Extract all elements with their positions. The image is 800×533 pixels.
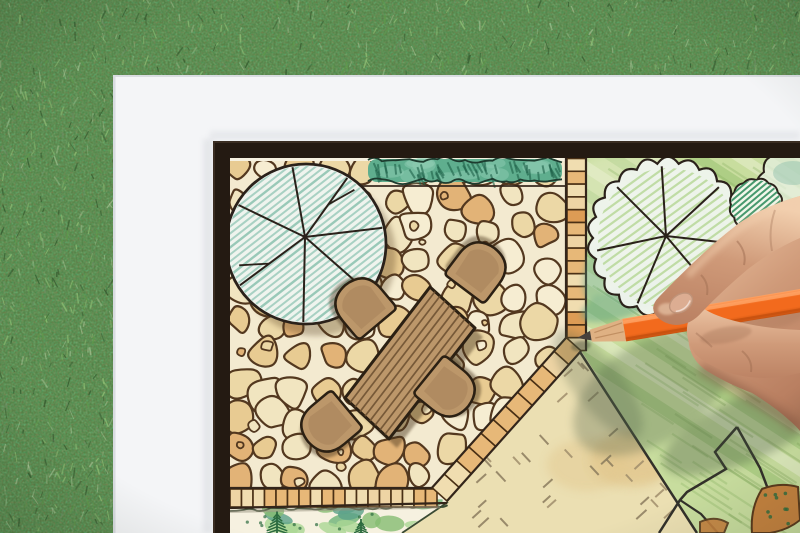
photo-of-garden-plan-drawing [0, 0, 800, 533]
vignette [0, 0, 800, 533]
scene-canvas [0, 0, 800, 533]
